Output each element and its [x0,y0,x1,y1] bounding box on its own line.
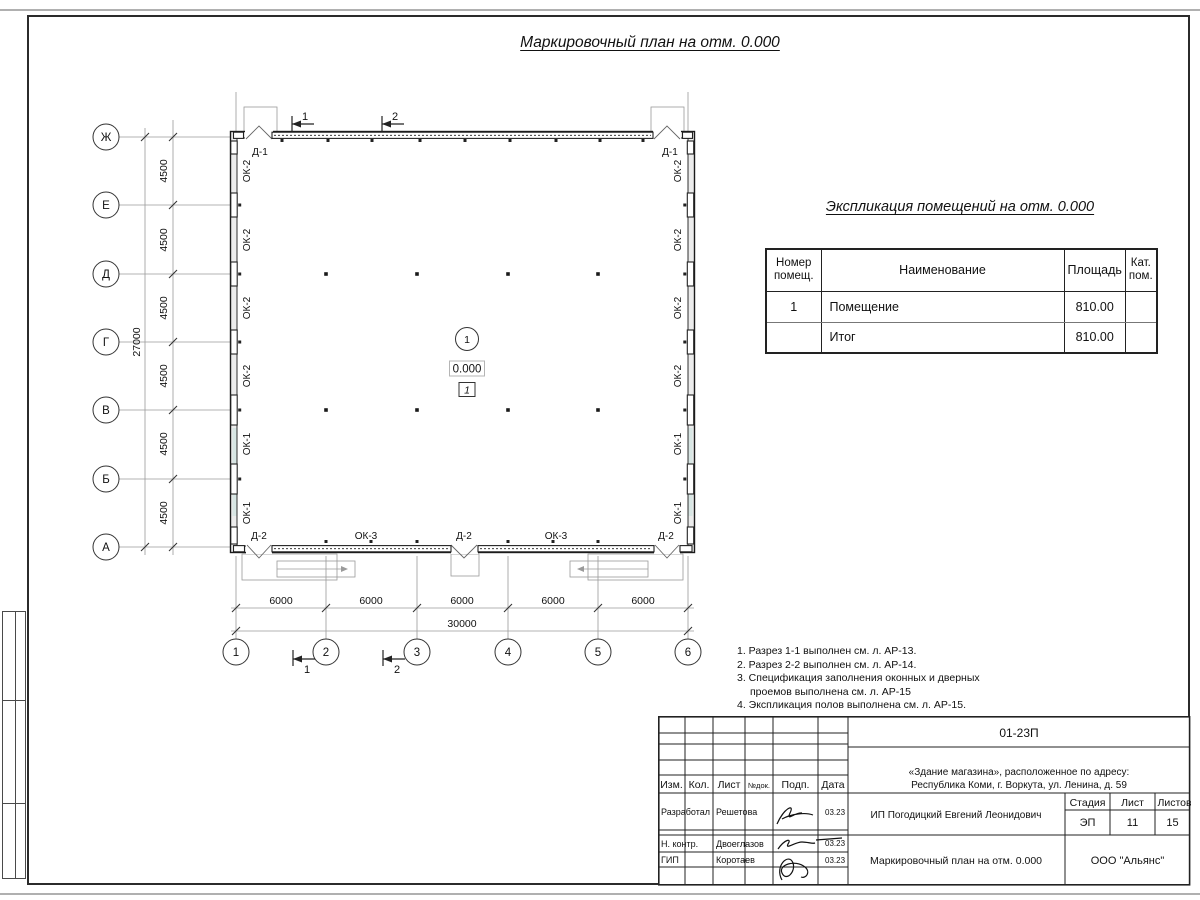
sheets-header: Листов [1157,797,1191,809]
cell-category [1125,291,1156,322]
window-label: ОК-2 [242,364,253,387]
col-list: Лист [718,779,741,791]
explication-title: Экспликация помещений на отм. 0.000 [765,199,1155,215]
window-label: ОК-2 [673,228,684,251]
col-podp: Подп. [782,779,810,791]
role-label: ГИП [661,855,679,865]
window-label: ОК-2 [673,159,684,182]
window-label: ОК-1 [673,432,684,455]
door-label: Д-2 [251,531,267,542]
drawing-sheet: Маркировочный план на отм. 0.000 [0,0,1200,900]
axis-label: 6 [685,647,691,659]
window-label: ОК-1 [242,501,253,524]
header-category: Кат. пом. [1125,249,1156,291]
cell-room-number [766,322,821,353]
cell-room-number: 1 [766,291,821,322]
dim-label: 4500 [158,296,170,320]
cell-category [1125,322,1156,353]
axis-label: 1 [233,647,239,659]
porch-bottom-left [242,554,337,580]
role-label: Разработал [661,807,710,817]
object-address-line2: Республика Коми, г. Воркута, ул. Ленина,… [911,779,1127,791]
title-block: Изм. Кол. Лист №док. Подп. Дата Разработ… [658,716,1191,886]
axis-label: Б [102,474,110,486]
dim-label: 6000 [359,595,383,607]
porch-top-right [651,107,684,132]
stamp-sheet-title: Маркировочный план на отм. 0.000 [870,855,1042,867]
axis-label: Е [102,200,110,212]
col-izm: Изм. [660,779,683,791]
header-area: Площадь [1064,249,1125,291]
section-number: 1 [304,664,310,676]
axis-label: 3 [414,647,420,659]
window-label: ОК-2 [242,228,253,251]
door-label: Д-1 [252,147,268,158]
sheets-total: 15 [1166,817,1178,829]
section-number: 2 [392,111,398,123]
date-value: 03.23 [825,839,846,848]
dim-label: 4500 [158,432,170,456]
note-line: 1. Разрез 1-1 выполнен см. л. АР-13. [737,645,1077,659]
notes: 1. Разрез 1-1 выполнен см. л. АР-13. 2. … [737,645,1077,713]
cell-area: 810.00 [1064,291,1125,322]
cell-area: 810.00 [1064,322,1125,353]
note-line: 4. Экспликация полов выполнена см. л. АР… [737,699,1077,713]
room-number: 1 [464,334,470,346]
note-line: проемов выполнена см. л. АР-15 [737,686,1077,700]
axis-label: А [102,542,110,554]
axis-label: Ж [101,132,112,144]
dim-total-label: 30000 [447,618,476,630]
client-name: ИП Погодицкий Евгений Леонидович [871,810,1042,821]
floor-plan: Ж Е Д Г В Б А 1 2 3 4 5 6 4500 4500 4500… [80,85,725,685]
date-value: 03.23 [825,808,846,817]
doc-number: 01-23П [999,726,1038,740]
porch-bottom-right [588,554,683,580]
sheet-edge-top [0,9,1200,11]
col-axis-bubbles [223,639,701,665]
left-margin-box [2,803,26,879]
section-number: 1 [302,111,308,123]
left-margin-box [2,611,26,701]
sheet-title: Маркировочный план на отм. 0.000 [400,34,900,52]
ramp-arrow-left [577,566,584,572]
door-label: Д-2 [456,531,472,542]
col-kol: Кол. [689,779,710,791]
person-name: Двоеглазов [716,839,764,849]
note-line: 2. Разрез 2-2 выполнен см. л. АР-14. [737,659,1077,673]
table-header-row: Номер помещ. Наименование Площадь Кат. п… [766,249,1157,291]
axis-label: 4 [505,647,512,659]
dim-label: 4500 [158,364,170,388]
sheet-header: Лист [1121,797,1144,809]
dim-label: 6000 [269,595,293,607]
door-label: Д-2 [658,531,674,542]
left-margin-divider [15,611,16,879]
date-value: 03.23 [825,856,846,865]
window-label: ОК-3 [545,531,568,542]
left-margin-box [2,700,26,804]
dim-label: 6000 [450,595,474,607]
section-number: 2 [394,664,400,676]
object-address-line1: «Здание магазина», расположенное по адре… [909,767,1130,778]
window-label: ОК-3 [355,531,378,542]
col-data: Дата [821,779,844,791]
sheet-number: 11 [1127,817,1138,829]
header-room-number: Номер помещ. [766,249,821,291]
cell-name: Итог [821,322,1064,353]
stage-value: ЭП [1080,817,1096,829]
person-name: Решетова [716,807,757,817]
explication-table: Номер помещ. Наименование Площадь Кат. п… [765,248,1158,354]
porch-top-left [244,107,277,132]
room-elevation: 0.000 [453,364,482,376]
note-line: 3. Спецификация заполнения оконных и две… [737,672,1077,686]
cell-name: Помещение [821,291,1064,322]
stage-header: Стадия [1070,797,1106,809]
axis-label: В [102,405,110,417]
dim-total-label: 27000 [131,327,143,356]
dim-label: 6000 [541,595,565,607]
dim-label: 4500 [158,501,170,525]
header-name: Наименование [821,249,1064,291]
axis-label: Д [102,269,110,281]
org-name: ООО "Альянс" [1091,855,1165,867]
dim-label: 4500 [158,228,170,252]
axis-label: 2 [323,647,329,659]
table-row: 1 Помещение 810.00 [766,291,1157,322]
person-name: Коротаев [716,855,755,865]
window-label: ОК-1 [242,432,253,455]
dim-label: 4500 [158,159,170,183]
sheet-edge-bottom [0,893,1200,895]
col-ndok: №док. [748,781,770,790]
window-label: ОК-2 [242,296,253,319]
role-label: Н. контр. [661,839,698,849]
window-label: ОК-1 [673,501,684,524]
axis-label: 5 [595,647,601,659]
window-label: ОК-2 [242,159,253,182]
table-row: Итог 810.00 [766,322,1157,353]
floor-type-number: 1 [464,385,470,397]
ramp-arrow-right [341,566,348,572]
axis-label: Г [103,337,110,349]
window-label: ОК-2 [673,296,684,319]
window-label: ОК-2 [673,364,684,387]
door-label: Д-1 [662,147,678,158]
dim-label: 6000 [631,595,655,607]
